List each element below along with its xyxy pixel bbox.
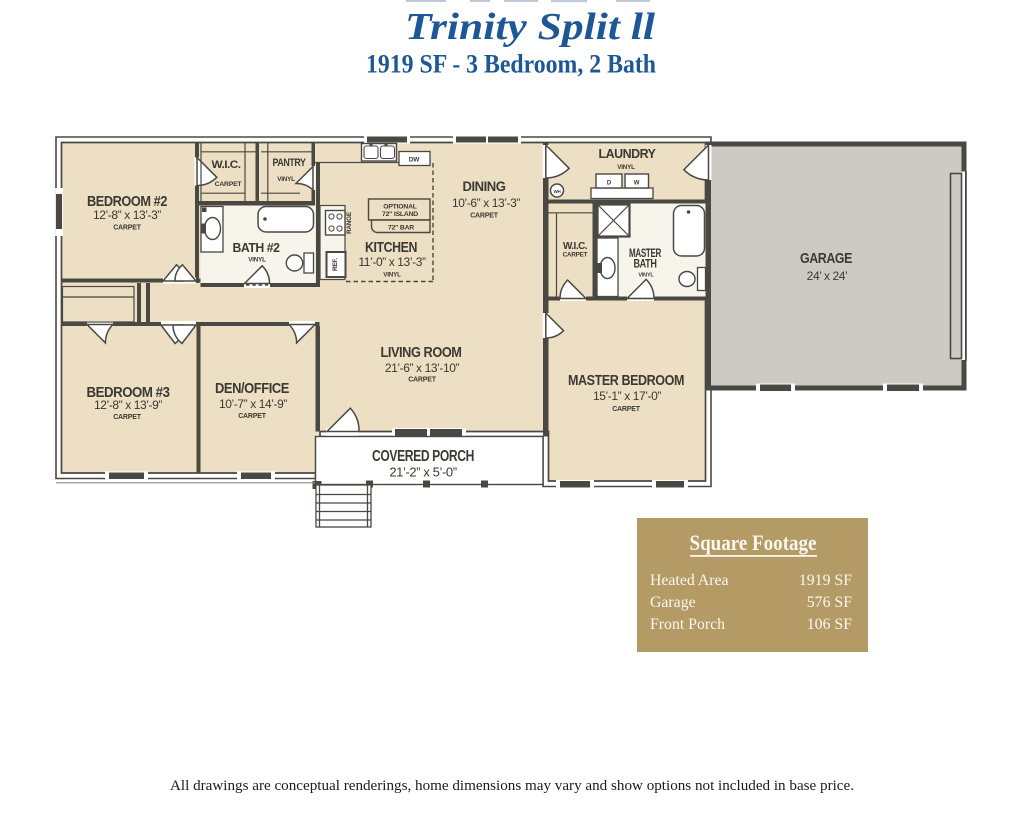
svg-text:Front Porch: Front Porch [650,616,725,633]
svg-text:DINING: DINING [463,178,507,194]
svg-text:W: W [634,181,640,187]
svg-text:12’-8” x 13’-3”: 12’-8” x 13’-3” [93,208,161,222]
svg-text:CARPET: CARPET [215,181,243,188]
svg-text:REF.: REF. [332,258,339,271]
svg-text:DEN/OFFICE: DEN/OFFICE [215,380,289,397]
svg-text:12’-8” x 13’-9”: 12’-8” x 13’-9” [94,398,162,412]
svg-text:21’-6” x 13’-10”: 21’-6” x 13’-10” [385,361,460,375]
svg-text:OPTIONAL: OPTIONAL [383,204,417,211]
svg-text:W.I.C.: W.I.C. [212,159,241,171]
svg-text:KITCHEN: KITCHEN [365,239,417,256]
svg-text:1919 SF - 3 Bedroom, 2 Bath: 1919 SF - 3 Bedroom, 2 Bath [366,50,656,79]
svg-text:72″ BAR: 72″ BAR [388,225,414,232]
svg-text:CARPET: CARPET [612,406,641,413]
svg-text:72″ ISLAND: 72″ ISLAND [382,211,418,218]
svg-text:15’-1” x 17’-0”: 15’-1” x 17’-0” [593,389,661,403]
svg-text:LIVING ROOM: LIVING ROOM [381,344,462,361]
svg-text:24’ x 24’: 24’ x 24’ [807,269,848,283]
svg-text:CARPET: CARPET [470,213,499,220]
svg-text:106 SF: 106 SF [807,616,852,633]
svg-text:576 SF: 576 SF [807,594,852,611]
svg-text:All drawings are conceptual re: All drawings are conceptual renderings, … [170,778,854,794]
svg-text:Heated Area: Heated Area [650,572,729,589]
svg-text:W.I.C.: W.I.C. [563,241,588,252]
svg-text:PANTRY: PANTRY [273,157,307,169]
svg-text:RANGE: RANGE [346,212,353,234]
svg-text:11’-0” x 13’-3”: 11’-0” x 13’-3” [358,255,426,269]
svg-text:VINYL: VINYL [617,164,635,171]
svg-text:COVERED PORCH: COVERED PORCH [372,448,474,465]
svg-text:CARPET: CARPET [113,225,142,232]
svg-text:VINYL: VINYL [383,272,401,279]
svg-text:DW: DW [409,157,420,164]
svg-text:1919 SF: 1919 SF [799,572,852,589]
svg-text:10’-7” x 14’-9”: 10’-7” x 14’-9” [219,397,287,411]
svg-text:CARPET: CARPET [563,252,588,259]
svg-text:BATH #2: BATH #2 [233,240,280,255]
svg-text:Garage: Garage [650,594,696,611]
svg-text:21’-2” x 5’-0”: 21’-2” x 5’-0” [389,465,456,480]
svg-text:VINYL: VINYL [248,257,266,264]
svg-text:GARAGE: GARAGE [800,250,852,267]
svg-text:CARPET: CARPET [238,413,267,420]
svg-text:Trinity Split ll: Trinity Split ll [405,6,656,48]
svg-text:VINYL: VINYL [638,273,654,279]
svg-text:MASTER BEDROOM: MASTER BEDROOM [568,372,684,389]
svg-text:BATH: BATH [634,257,657,271]
svg-text:WH: WH [553,189,560,194]
svg-text:CARPET: CARPET [408,377,437,384]
svg-text:VINYL: VINYL [277,176,295,183]
svg-text:10’-6” x 13’-3”: 10’-6” x 13’-3” [452,196,520,210]
svg-text:LAUNDRY: LAUNDRY [599,146,657,161]
svg-text:CARPET: CARPET [113,414,142,421]
svg-text:Square Footage: Square Footage [690,530,817,555]
